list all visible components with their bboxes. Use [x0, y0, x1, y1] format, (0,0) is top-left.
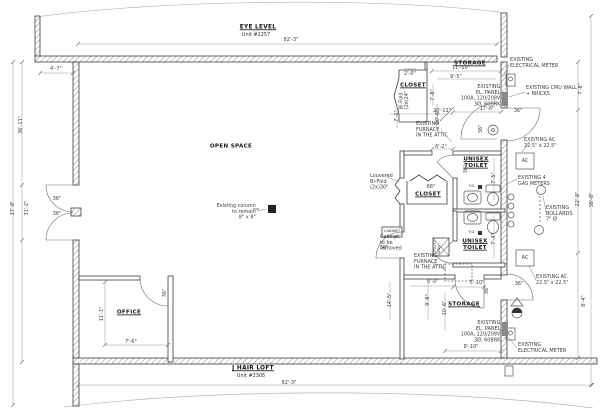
dim-closet1-depth: 7'-8" — [430, 89, 436, 101]
dim-overall-bottom: 82'-3" — [282, 380, 297, 386]
note-existing-column: Existing column to remain 8" x 8" — [217, 203, 256, 220]
bollard — [535, 226, 544, 235]
note-furnace-bottom: EXISTING FURNACE IN THE ATTIC — [414, 253, 446, 270]
note-furnace-top: EXISTING FURNACE IN THE ATTIC — [416, 121, 448, 138]
note-cmu-wall: EXISTING CMU WALL + BRICKS — [526, 85, 577, 97]
note-ac-bottom: EXISTING AC 22.5" x 22.5" — [536, 274, 568, 286]
floor-drain-label-bottom: F.D. — [469, 231, 476, 235]
existing-column — [268, 205, 276, 213]
title-eye-level: EYE LEVEL — [240, 24, 277, 31]
dim-left-inner: 31'-2" — [24, 201, 30, 216]
dim-toilet-top-depth: 7'-5" — [491, 172, 497, 184]
dim-left-full: 37'-8" — [10, 201, 16, 216]
electrical-panel-top — [502, 92, 508, 106]
note-cabinet-removed: Cabinet to be removed — [380, 234, 402, 251]
door-label-left-upper: 36" — [53, 196, 62, 202]
floor-plan-drawing: EYE LEVEL Unit #2257 82'-3" J HAIR LOFT … — [0, 0, 600, 416]
dim-vestibule2-h: 14'-5" — [387, 293, 393, 308]
dim-left-upper: 36'-11" — [18, 116, 24, 134]
dim-right-lower: 8'-4" — [581, 295, 587, 307]
room-office: OFFICE — [117, 309, 141, 316]
dim-right-full: 38'-8" — [589, 193, 595, 208]
door-label-office: 36" — [162, 289, 168, 298]
dim-toilet-bottom-depth: 7'-4" — [491, 233, 497, 245]
room-closet-top: CLOSET — [400, 82, 426, 89]
dim-storage2-door: 5'-10" — [470, 280, 485, 286]
room-unisex-toilet-bottom: UNISEX TOILET — [462, 237, 487, 250]
door-label-toilet-top: 36" — [463, 165, 469, 174]
note-ac-top: EXISTING AC 22.5" x 22.5" — [524, 137, 556, 149]
title-j-hair-loft: J HAIR LOFT — [232, 365, 274, 372]
dim-vestibule-w: 6'-2" — [435, 144, 447, 150]
door-label-right-lower: 36" — [515, 281, 524, 287]
gas-meter — [508, 221, 514, 227]
door-label-left-lower: 36" — [53, 211, 62, 217]
gas-meter — [508, 194, 514, 200]
dim-office-width: 7'-6" — [125, 339, 137, 345]
unit-number-top: Unit #2257 — [242, 32, 270, 38]
note-el-panel-top: EXISTING EL. PANEL 100A, 120/208V 3Ø, 60… — [460, 84, 500, 107]
note-el-panel-bottom: EXISTING EL. PANEL 100A, 120/208V 3Ø, 60… — [460, 320, 500, 343]
dim-closet2-opening: 66" — [427, 184, 436, 190]
ac-unit-bottom-label: AC — [522, 255, 529, 261]
room-open-space: OPEN SPACE — [210, 143, 252, 150]
ac-unit-top-label: AC — [522, 158, 529, 164]
note-bifold-24: Bi-Fold (2x)24" — [398, 91, 410, 109]
dim-hall-lower: 9'-8" — [425, 294, 431, 306]
dim-storage-top-w1: 11'-10" — [452, 65, 470, 71]
electrical-panel-bottom — [502, 322, 508, 336]
note-bollards: EXISTING BOLLARDS 7" Ø — [546, 205, 572, 222]
note-gas-meters: EXISTING 4 GAS METERS — [518, 175, 550, 187]
door-label-right-upper: 36" — [514, 108, 523, 114]
gas-meter — [508, 203, 514, 209]
door-label-storage-top: 36" — [478, 125, 484, 134]
gas-meter — [508, 212, 514, 218]
interior-walls — [79, 62, 505, 362]
dim-closet1-width: 7'-1" — [394, 110, 400, 122]
dim-storage-top-w2: 9'-5" — [450, 74, 462, 80]
note-electrical-meter-top: EXISTING ELECTRICAL METER — [510, 57, 558, 69]
dim-closet1-offset: 2'-0" — [404, 71, 416, 77]
exhaust-fan-symbol — [511, 298, 523, 318]
note-electrical-meter-bottom: EXISTING ELECTRICAL METER — [518, 342, 566, 354]
floor-drain-label-top: F.D. — [469, 185, 476, 189]
exterior-walls — [35, 13, 597, 406]
note-louvered-bifold: Louvered Bi-Fold (2x)30" — [370, 173, 393, 190]
dim-open-east: 20'-11" — [433, 108, 451, 114]
dim-panel-wall: 8'-10" — [464, 344, 479, 350]
utility-sink-label: UTILITY SINK — [434, 240, 443, 254]
dim-vestibule2-w: 6'-0" — [427, 279, 439, 285]
dim-office-depth: 11'-1" — [99, 307, 105, 322]
dim-left-offset: 4'-7" — [50, 66, 62, 72]
room-closet-mid: CLOSET — [415, 191, 441, 198]
dim-right-mid: 22'-8" — [575, 192, 581, 207]
dim-storage2-depth: 10'-6" — [442, 301, 448, 316]
unit-number-bottom: Unit #2305 — [237, 373, 265, 379]
dim-overall-top: 82'-3" — [284, 37, 299, 43]
door-label-storage-bottom: 36" — [484, 286, 490, 295]
dim-right-upper: 7'-8" — [578, 83, 584, 95]
bollard — [537, 186, 546, 195]
room-storage-bottom: STORAGE — [448, 301, 480, 308]
